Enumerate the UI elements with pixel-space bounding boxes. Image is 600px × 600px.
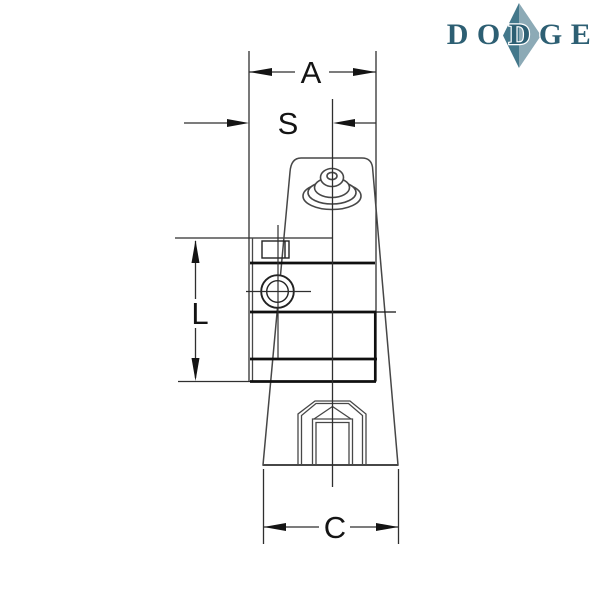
dimension-label-a: A bbox=[301, 55, 322, 90]
dim-s-arrow-left bbox=[227, 119, 249, 127]
bolt-hole bbox=[246, 225, 311, 358]
drawing-canvas: A S L bbox=[0, 0, 600, 600]
dim-l-arrow-down bbox=[192, 358, 200, 381]
dimension-label-l: L bbox=[191, 296, 208, 331]
dim-a-arrow-right bbox=[353, 68, 376, 76]
dim-a-arrow-left bbox=[249, 68, 272, 76]
dim-s-arrow-right bbox=[333, 119, 355, 127]
dim-c-arrow-left bbox=[264, 523, 287, 531]
dimension-a bbox=[249, 51, 376, 382]
logo-wordmark: DODGE bbox=[447, 18, 600, 51]
dodge-logo: DODGE bbox=[447, 3, 600, 68]
dimension-label-s: S bbox=[278, 106, 299, 141]
dim-c-arrow-right bbox=[376, 523, 399, 531]
dimension-label-c: C bbox=[324, 510, 346, 545]
technical-drawing: A S L bbox=[0, 0, 600, 600]
dim-l-arrow-up bbox=[192, 240, 200, 263]
